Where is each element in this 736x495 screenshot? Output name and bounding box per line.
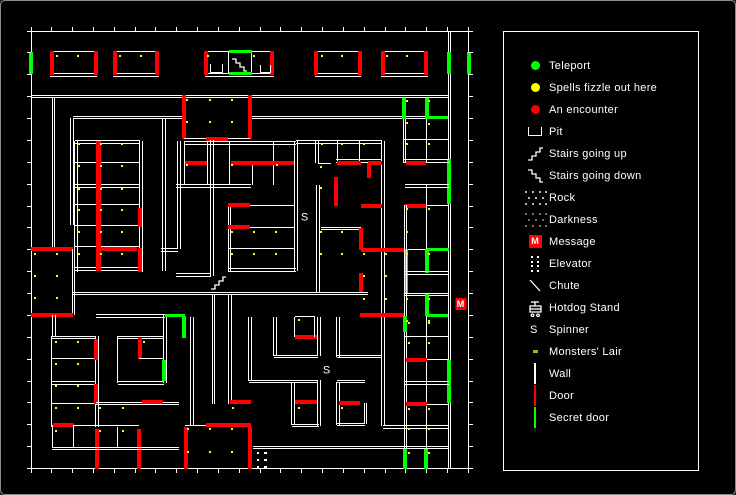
wall-segment: [403, 139, 449, 140]
wall-segment: [31, 31, 469, 32]
wall-segment: [403, 448, 449, 449]
wall-segment: [228, 271, 297, 272]
event-dot: [363, 143, 365, 145]
grid-tick: [468, 402, 473, 403]
event-dot: [385, 253, 387, 255]
door-segment: [50, 51, 54, 75]
wall-segment: [118, 336, 165, 337]
wall-segment: [113, 76, 159, 77]
event-dot: [78, 143, 80, 145]
door-segment: [113, 51, 117, 75]
grid-tick: [322, 469, 323, 474]
wall-segment: [176, 187, 251, 188]
event-dot: [34, 253, 36, 255]
wall-segment: [72, 249, 73, 315]
event-dot: [231, 164, 233, 166]
wall-segment: [228, 205, 229, 272]
wall-segment: [228, 248, 295, 249]
event-dot: [320, 187, 322, 189]
wall-segment: [251, 116, 448, 117]
door-segment: [138, 338, 142, 359]
event-dot: [341, 143, 343, 145]
wall-segment: [163, 315, 164, 337]
door-segment: [31, 247, 73, 251]
grid-tick: [72, 469, 73, 474]
wall-segment: [77, 141, 78, 272]
fizzle-icon: [531, 83, 540, 92]
event-dot: [321, 55, 323, 57]
wall-segment: [427, 359, 449, 360]
door-segment: [424, 51, 428, 75]
secret-door-segment: [402, 98, 406, 119]
grid-tick: [27, 293, 32, 294]
wall-segment: [210, 140, 211, 277]
event-dot: [408, 428, 410, 430]
grid-tick: [468, 74, 473, 75]
secret-door-segment: [427, 116, 448, 119]
event-dot: [406, 231, 408, 233]
event-dot: [121, 165, 123, 167]
secret-door-segment: [467, 52, 471, 75]
event-dot: [121, 253, 123, 255]
wall-segment: [273, 317, 274, 357]
grid-tick: [27, 446, 32, 447]
wall-segment: [52, 97, 53, 250]
wall-segment: [73, 116, 183, 117]
legend-item-label: Teleport: [549, 60, 591, 72]
wall-segment: [75, 140, 140, 141]
event-dot: [341, 231, 343, 233]
grid-tick: [468, 52, 473, 53]
grid-tick: [27, 424, 32, 425]
event-dot: [406, 298, 408, 300]
wall-segment: [176, 273, 211, 274]
wall-segment: [314, 317, 315, 338]
event-dot: [100, 209, 102, 211]
door-segment: [53, 423, 75, 427]
event-dot: [209, 428, 211, 430]
wall-segment: [276, 317, 277, 357]
legend-item-label: An encounter: [549, 104, 618, 116]
wall-segment: [184, 144, 296, 145]
wall-segment: [52, 449, 180, 450]
event-dot: [55, 407, 57, 409]
wall-segment: [52, 447, 180, 448]
wall-segment: [52, 358, 96, 359]
wall-segment: [50, 51, 98, 52]
event-dot: [253, 55, 255, 57]
event-dot: [320, 253, 322, 255]
grid-tick: [93, 27, 94, 32]
wall-segment: [213, 140, 214, 277]
grid-tick: [343, 469, 344, 474]
event-dot: [55, 341, 57, 343]
door-segment: [367, 163, 371, 178]
event-dot: [406, 100, 408, 102]
grid-tick: [72, 27, 73, 32]
door-icon: [534, 385, 537, 406]
pit-icon: [260, 65, 271, 73]
wall-segment: [337, 357, 383, 358]
event-dot: [341, 55, 343, 57]
wall-segment: [184, 138, 206, 139]
door-segment: [185, 161, 207, 165]
door-segment: [94, 51, 98, 75]
wall-segment: [317, 317, 318, 357]
wall-segment: [274, 355, 319, 356]
wall-segment: [193, 317, 194, 426]
wall-segment: [297, 141, 298, 271]
legend-item-label: Spinner: [549, 324, 589, 336]
wall-segment: [73, 118, 183, 119]
wall-segment: [117, 427, 118, 448]
event-dot: [56, 253, 58, 255]
wall-segment: [295, 316, 315, 317]
wall-segment: [176, 184, 251, 185]
wall-segment: [336, 382, 337, 425]
door-segment: [406, 161, 427, 165]
grid-tick: [239, 469, 240, 474]
grid-tick: [447, 469, 448, 474]
wall-segment: [296, 143, 382, 144]
wall-segment: [74, 249, 75, 315]
grid-tick: [447, 27, 448, 32]
wall-segment: [316, 185, 317, 294]
event-dot: [428, 342, 430, 344]
event-dot: [408, 342, 410, 344]
wall-segment: [228, 51, 229, 74]
wall-segment: [294, 141, 295, 271]
grid-tick: [27, 402, 32, 403]
grid-tick: [405, 27, 406, 32]
wall-segment: [31, 97, 448, 98]
grid-tick: [468, 468, 473, 469]
grid-tick: [27, 315, 32, 316]
wall-segment: [161, 248, 178, 249]
door-segment: [206, 423, 251, 427]
event-dot: [78, 165, 80, 167]
elevator-icon: [257, 459, 260, 462]
event-dot: [231, 121, 233, 123]
door-segment: [361, 248, 404, 252]
lair-icon: [533, 350, 538, 353]
wall-segment: [318, 163, 331, 164]
wall-segment: [427, 205, 449, 206]
event-dot: [78, 253, 80, 255]
event-dot: [363, 298, 365, 300]
wall-segment: [296, 140, 382, 141]
elevator-icon: [264, 452, 267, 455]
wall-segment: [253, 448, 404, 449]
wall-segment: [317, 380, 318, 426]
grid-tick: [468, 469, 469, 474]
secret-door-segment: [447, 159, 451, 204]
grid-tick: [31, 469, 32, 474]
wall-segment: [190, 317, 191, 426]
door-segment: [361, 204, 382, 208]
wall-segment: [52, 336, 97, 337]
event-dot: [34, 275, 36, 277]
wall-segment: [321, 229, 361, 230]
door-segment: [339, 401, 360, 405]
event-dot: [341, 253, 343, 255]
event-dot: [209, 451, 211, 453]
spinner-marker: S: [323, 365, 330, 376]
grid-tick: [468, 381, 473, 382]
event-dot: [77, 385, 79, 387]
grid-tick: [27, 96, 32, 97]
grid-tick: [27, 140, 32, 141]
grid-tick: [27, 359, 32, 360]
wall-segment: [113, 51, 159, 52]
event-dot: [406, 122, 408, 124]
event-dot: [231, 428, 233, 430]
legend-item-label: Hotdog Stand: [549, 302, 620, 314]
door-segment: [230, 400, 251, 404]
grid-tick: [27, 74, 32, 75]
grid-tick: [405, 469, 406, 474]
wall-segment: [70, 118, 71, 225]
wall-segment: [52, 384, 96, 385]
grid-tick: [385, 27, 386, 32]
legend-item-label: Elevator: [549, 258, 592, 270]
wall-segment: [364, 403, 365, 424]
wall-segment: [403, 159, 449, 160]
wall-icon: [534, 363, 537, 384]
wall-segment: [294, 317, 295, 338]
wall-segment: [55, 315, 56, 337]
event-dot: [275, 231, 277, 233]
grid-tick: [27, 31, 32, 32]
grid-tick: [27, 468, 32, 469]
event-dot: [78, 231, 80, 233]
door-segment: [155, 51, 159, 75]
wall-segment: [292, 424, 319, 425]
grid-tick: [27, 184, 32, 185]
chute-icon: [528, 279, 542, 292]
grid-tick: [218, 469, 219, 474]
wall-segment: [320, 380, 321, 426]
event-dot: [77, 341, 79, 343]
event-dot: [428, 253, 430, 255]
wall-segment: [212, 294, 213, 404]
event-dot: [121, 143, 123, 145]
event-dot: [408, 322, 410, 324]
wall-segment: [337, 355, 383, 356]
wall-segment: [228, 138, 250, 139]
wall-segment: [366, 403, 367, 424]
door-segment: [381, 51, 385, 75]
door-segment: [314, 51, 318, 75]
grid-tick: [468, 206, 473, 207]
wall-segment: [185, 425, 207, 426]
secret-door-segment: [403, 448, 407, 469]
event-dot: [186, 121, 188, 123]
secret-door-segment: [29, 52, 33, 75]
door-segment: [248, 427, 252, 469]
wall-segment: [250, 227, 295, 228]
message-icon: M: [529, 235, 542, 248]
spinner-marker: S: [301, 212, 308, 223]
wall-segment: [52, 425, 53, 448]
event-dot: [298, 407, 300, 409]
event-dot: [209, 121, 211, 123]
event-dot: [99, 407, 101, 409]
door-segment: [360, 313, 404, 317]
event-dot: [341, 407, 343, 409]
wall-segment: [50, 76, 98, 77]
wall-segment: [403, 446, 449, 447]
grid-tick: [27, 227, 32, 228]
secret-door-segment: [426, 314, 448, 317]
event-dot: [363, 253, 365, 255]
event-dot: [187, 428, 189, 430]
wall-segment: [228, 268, 297, 269]
event-dot: [100, 143, 102, 145]
wall-segment: [75, 225, 140, 226]
grid-tick: [301, 27, 302, 32]
grid-tick: [468, 162, 473, 163]
wall-segment: [75, 187, 140, 188]
grid-tick: [468, 337, 473, 338]
elevator-icon: [264, 459, 267, 462]
grid-tick: [468, 227, 473, 228]
wall-segment: [252, 163, 253, 185]
grid-tick: [364, 469, 365, 474]
wall-segment: [337, 425, 365, 426]
event-dot: [77, 55, 79, 57]
grid-tick: [114, 469, 115, 474]
legend-item-label: Rock: [549, 192, 575, 204]
teleport-icon: [531, 61, 540, 70]
secret-door-segment: [403, 316, 407, 332]
event-dot: [34, 297, 36, 299]
grid-tick: [135, 469, 136, 474]
secret-icon: [534, 407, 537, 428]
event-dot: [187, 451, 189, 453]
wall-segment: [249, 382, 319, 383]
grid-tick: [426, 469, 427, 474]
wall-segment: [249, 380, 319, 381]
event-dot: [56, 275, 58, 277]
door-segment: [358, 51, 362, 75]
legend-item-label: Wall: [549, 368, 571, 380]
door-segment: [406, 402, 427, 406]
event-dot: [56, 55, 58, 57]
grid-tick: [114, 27, 115, 32]
door-segment: [405, 204, 427, 208]
event-dot: [77, 363, 79, 365]
wall-segment: [337, 423, 365, 424]
wall-segment: [253, 446, 404, 447]
legend-item-label: Darkness: [549, 214, 598, 226]
rock-icon: [524, 190, 546, 205]
wall-segment: [31, 95, 448, 96]
wall-segment: [251, 51, 252, 74]
wall-segment: [404, 274, 449, 275]
wall-segment: [75, 184, 140, 185]
wall-segment: [52, 381, 96, 382]
wall-segment: [315, 73, 362, 74]
legend-item-label: Chute: [549, 280, 580, 292]
elevator-icon: [529, 255, 541, 272]
event-dot: [100, 253, 102, 255]
event-dot: [100, 231, 102, 233]
grid-tick: [93, 469, 94, 474]
event-dot: [121, 231, 123, 233]
event-dot: [55, 363, 57, 365]
grid-tick: [260, 469, 261, 474]
stairs-down-icon: [527, 169, 544, 183]
grid-tick: [343, 27, 344, 32]
wall-segment: [381, 51, 428, 52]
event-dot: [122, 430, 124, 432]
dungeon-map-canvas[interactable]: SSM: [1, 1, 481, 495]
event-dot: [406, 143, 408, 145]
elevator-icon: [264, 466, 267, 469]
legend-item-label: Secret door: [549, 412, 609, 424]
door-segment: [138, 208, 142, 227]
wall-segment: [427, 404, 449, 405]
door-segment: [228, 225, 250, 229]
wall-segment: [75, 267, 140, 268]
door-segment: [138, 248, 142, 272]
wall-segment: [75, 162, 140, 163]
wall-segment: [339, 317, 340, 357]
secret-door-segment: [162, 360, 166, 381]
event-dot: [55, 385, 57, 387]
grid-tick: [27, 337, 32, 338]
event-dot: [385, 275, 387, 277]
legend-item-label: Stairs going down: [549, 170, 642, 182]
grid-tick: [364, 27, 365, 32]
event-dot: [428, 408, 430, 410]
event-dot: [408, 452, 410, 454]
grid-tick: [27, 249, 32, 250]
grid-tick: [385, 469, 386, 474]
hotdog-icon: [526, 299, 544, 317]
event-dot: [406, 55, 408, 57]
wall-segment: [96, 314, 165, 315]
encounter-icon: [531, 105, 540, 114]
door-segment: [184, 427, 188, 469]
event-dot: [121, 209, 123, 211]
wall-segment: [426, 185, 427, 250]
door-segment: [96, 141, 101, 271]
event-dot: [408, 408, 410, 410]
secret-door-segment: [182, 316, 186, 339]
grid-tick: [176, 27, 177, 32]
event-dot: [275, 253, 277, 255]
grid-tick: [135, 27, 136, 32]
wall-segment: [251, 118, 448, 119]
grid-tick: [197, 27, 198, 32]
event-dot: [232, 407, 234, 409]
event-dot: [428, 123, 430, 125]
event-dot: [186, 99, 188, 101]
wall-segment: [250, 205, 295, 206]
wall-segment: [315, 76, 362, 77]
wall-segment: [381, 76, 428, 77]
event-dot: [428, 322, 430, 324]
grid-tick: [176, 469, 177, 474]
event-dot: [55, 430, 57, 432]
grid-tick: [468, 96, 473, 97]
wall-segment: [404, 336, 449, 337]
secret-door-segment: [229, 50, 252, 53]
event-dot: [321, 143, 323, 145]
grid-tick: [239, 27, 240, 32]
